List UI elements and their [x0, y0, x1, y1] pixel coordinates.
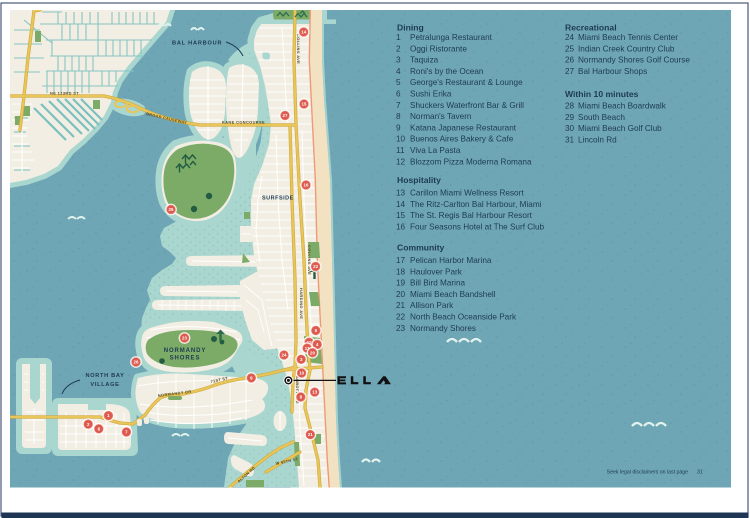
- svg-text:Bal Harbour Shops: Bal Harbour Shops: [578, 67, 647, 76]
- svg-text:8: 8: [396, 112, 401, 121]
- svg-text:2: 2: [396, 44, 401, 53]
- svg-text:10: 10: [299, 371, 304, 376]
- svg-text:24: 24: [282, 353, 287, 358]
- svg-text:14: 14: [396, 200, 406, 209]
- svg-text:Pelican Harbor Marina: Pelican Harbor Marina: [410, 256, 492, 265]
- svg-text:Haulover Park: Haulover Park: [410, 267, 463, 276]
- svg-text:Normandy Shores Golf Course: Normandy Shores Golf Course: [578, 56, 690, 65]
- svg-text:Lincoln Rd: Lincoln Rd: [578, 135, 617, 144]
- svg-text:25: 25: [169, 207, 174, 212]
- svg-text:24: 24: [565, 33, 575, 42]
- svg-text:26: 26: [565, 56, 575, 65]
- svg-text:28: 28: [565, 102, 575, 111]
- svg-text:20: 20: [310, 350, 315, 355]
- svg-text:Community: Community: [397, 243, 444, 253]
- svg-text:Miami Beach Boardwalk: Miami Beach Boardwalk: [578, 102, 667, 111]
- svg-text:KANE CONCOURSE: KANE CONCOURSE: [222, 120, 265, 125]
- svg-text:31: 31: [565, 135, 575, 144]
- svg-text:21: 21: [308, 432, 313, 437]
- svg-text:7: 7: [396, 101, 401, 110]
- svg-text:23: 23: [396, 324, 406, 333]
- svg-text:Indian Creek Country Club: Indian Creek Country Club: [578, 44, 675, 53]
- svg-text:Allison Park: Allison Park: [410, 301, 454, 310]
- svg-text:Bill Bird Marina: Bill Bird Marina: [410, 279, 466, 288]
- svg-text:27: 27: [283, 113, 288, 118]
- svg-text:19: 19: [396, 279, 406, 288]
- svg-text:COLLINS AVE: COLLINS AVE: [296, 34, 301, 64]
- svg-text:5: 5: [396, 78, 401, 87]
- svg-text:George's Restaurant & Lounge: George's Restaurant & Lounge: [410, 78, 523, 87]
- svg-text:9: 9: [396, 123, 401, 132]
- svg-text:22: 22: [313, 264, 318, 269]
- svg-text:15: 15: [302, 102, 307, 107]
- svg-text:15: 15: [396, 211, 406, 220]
- svg-text:The St. Regis Bal Harbour Reso: The St. Regis Bal Harbour Resort: [410, 211, 533, 220]
- svg-text:27: 27: [565, 67, 575, 76]
- svg-text:BAL HARBOUR: BAL HARBOUR: [172, 41, 222, 47]
- svg-text:4: 4: [396, 67, 401, 76]
- svg-text:Oggi Ristorante: Oggi Ristorante: [410, 44, 467, 53]
- svg-text:Recreational: Recreational: [565, 23, 617, 33]
- svg-text:SURFSIDE: SURFSIDE: [262, 196, 294, 202]
- svg-text:Hospitality: Hospitality: [397, 175, 441, 185]
- svg-text:6: 6: [396, 90, 401, 99]
- svg-text:16: 16: [304, 183, 309, 188]
- svg-text:Dining: Dining: [397, 23, 424, 33]
- svg-text:NE 123RD ST: NE 123RD ST: [50, 91, 79, 96]
- svg-text:16: 16: [396, 222, 406, 231]
- svg-text:Katana Japanese Restaurant: Katana Japanese Restaurant: [410, 123, 517, 132]
- svg-text:NORTH BAY: NORTH BAY: [85, 373, 124, 379]
- svg-text:17: 17: [396, 256, 406, 265]
- svg-text:Four Seasons Hotel at The Surf: Four Seasons Hotel at The Surf Club: [410, 222, 545, 231]
- svg-text:23: 23: [182, 336, 187, 341]
- svg-text:14: 14: [301, 30, 306, 35]
- svg-text:The Ritz-Carlton Bal Harbour,: The Ritz-Carlton Bal Harbour, Miami: [410, 200, 542, 209]
- svg-text:29: 29: [565, 113, 575, 122]
- svg-text:SHORES: SHORES: [170, 356, 201, 362]
- svg-text:21: 21: [396, 301, 406, 310]
- svg-text:30: 30: [565, 124, 575, 133]
- svg-text:Norman's Tavern: Norman's Tavern: [410, 112, 472, 121]
- svg-text:26: 26: [134, 360, 139, 365]
- svg-text:Blozzom Pizza Moderna Romana: Blozzom Pizza Moderna Romana: [410, 157, 532, 166]
- svg-text:Miami Beach Golf Club: Miami Beach Golf Club: [578, 124, 662, 133]
- svg-text:Seek legal disclaimers on last: Seek legal disclaimers on last page: [607, 470, 688, 476]
- svg-text:12: 12: [396, 157, 406, 166]
- svg-text:Viva La Pasta: Viva La Pasta: [410, 146, 461, 155]
- svg-text:20: 20: [396, 290, 406, 299]
- svg-text:Miami Beach Bandshell: Miami Beach Bandshell: [410, 290, 496, 299]
- svg-text:13: 13: [312, 390, 317, 395]
- svg-text:VILLAGE: VILLAGE: [90, 382, 119, 388]
- svg-text:10: 10: [396, 135, 406, 144]
- svg-text:Within 10 minutes: Within 10 minutes: [565, 89, 639, 99]
- svg-text:Normandy Shores: Normandy Shores: [410, 324, 476, 333]
- svg-text:NORMANDY: NORMANDY: [164, 348, 207, 354]
- svg-text:1: 1: [396, 33, 401, 42]
- svg-text:18: 18: [396, 267, 406, 276]
- svg-text:Roni's by the Ocean: Roni's by the Ocean: [410, 67, 484, 76]
- svg-text:Sushi Erika: Sushi Erika: [410, 90, 452, 99]
- svg-text:22: 22: [396, 313, 406, 322]
- svg-text:Miami Beach Tennis Center: Miami Beach Tennis Center: [578, 33, 678, 42]
- svg-text:COLLINS AVE: COLLINS AVE: [307, 245, 312, 275]
- svg-text:Carillon Miami Wellness Resort: Carillon Miami Wellness Resort: [410, 189, 524, 198]
- svg-text:North Beach Oceanside Park: North Beach Oceanside Park: [410, 313, 517, 322]
- svg-text:13: 13: [396, 189, 406, 198]
- svg-text:3: 3: [396, 56, 401, 65]
- svg-text:11: 11: [396, 146, 405, 155]
- svg-text:Buenos Aires Bakery & Cafe: Buenos Aires Bakery & Cafe: [410, 135, 514, 144]
- svg-text:Shuckers Waterfront Bar & Gril: Shuckers Waterfront Bar & Grill: [410, 101, 524, 110]
- svg-text:Petralunga Restaurant: Petralunga Restaurant: [410, 33, 493, 42]
- svg-text:HARDING AVE: HARDING AVE: [299, 288, 304, 319]
- svg-text:Taquiza: Taquiza: [410, 56, 439, 65]
- svg-text:31: 31: [697, 470, 703, 476]
- svg-text:25: 25: [565, 44, 575, 53]
- svg-text:South Beach: South Beach: [578, 113, 625, 122]
